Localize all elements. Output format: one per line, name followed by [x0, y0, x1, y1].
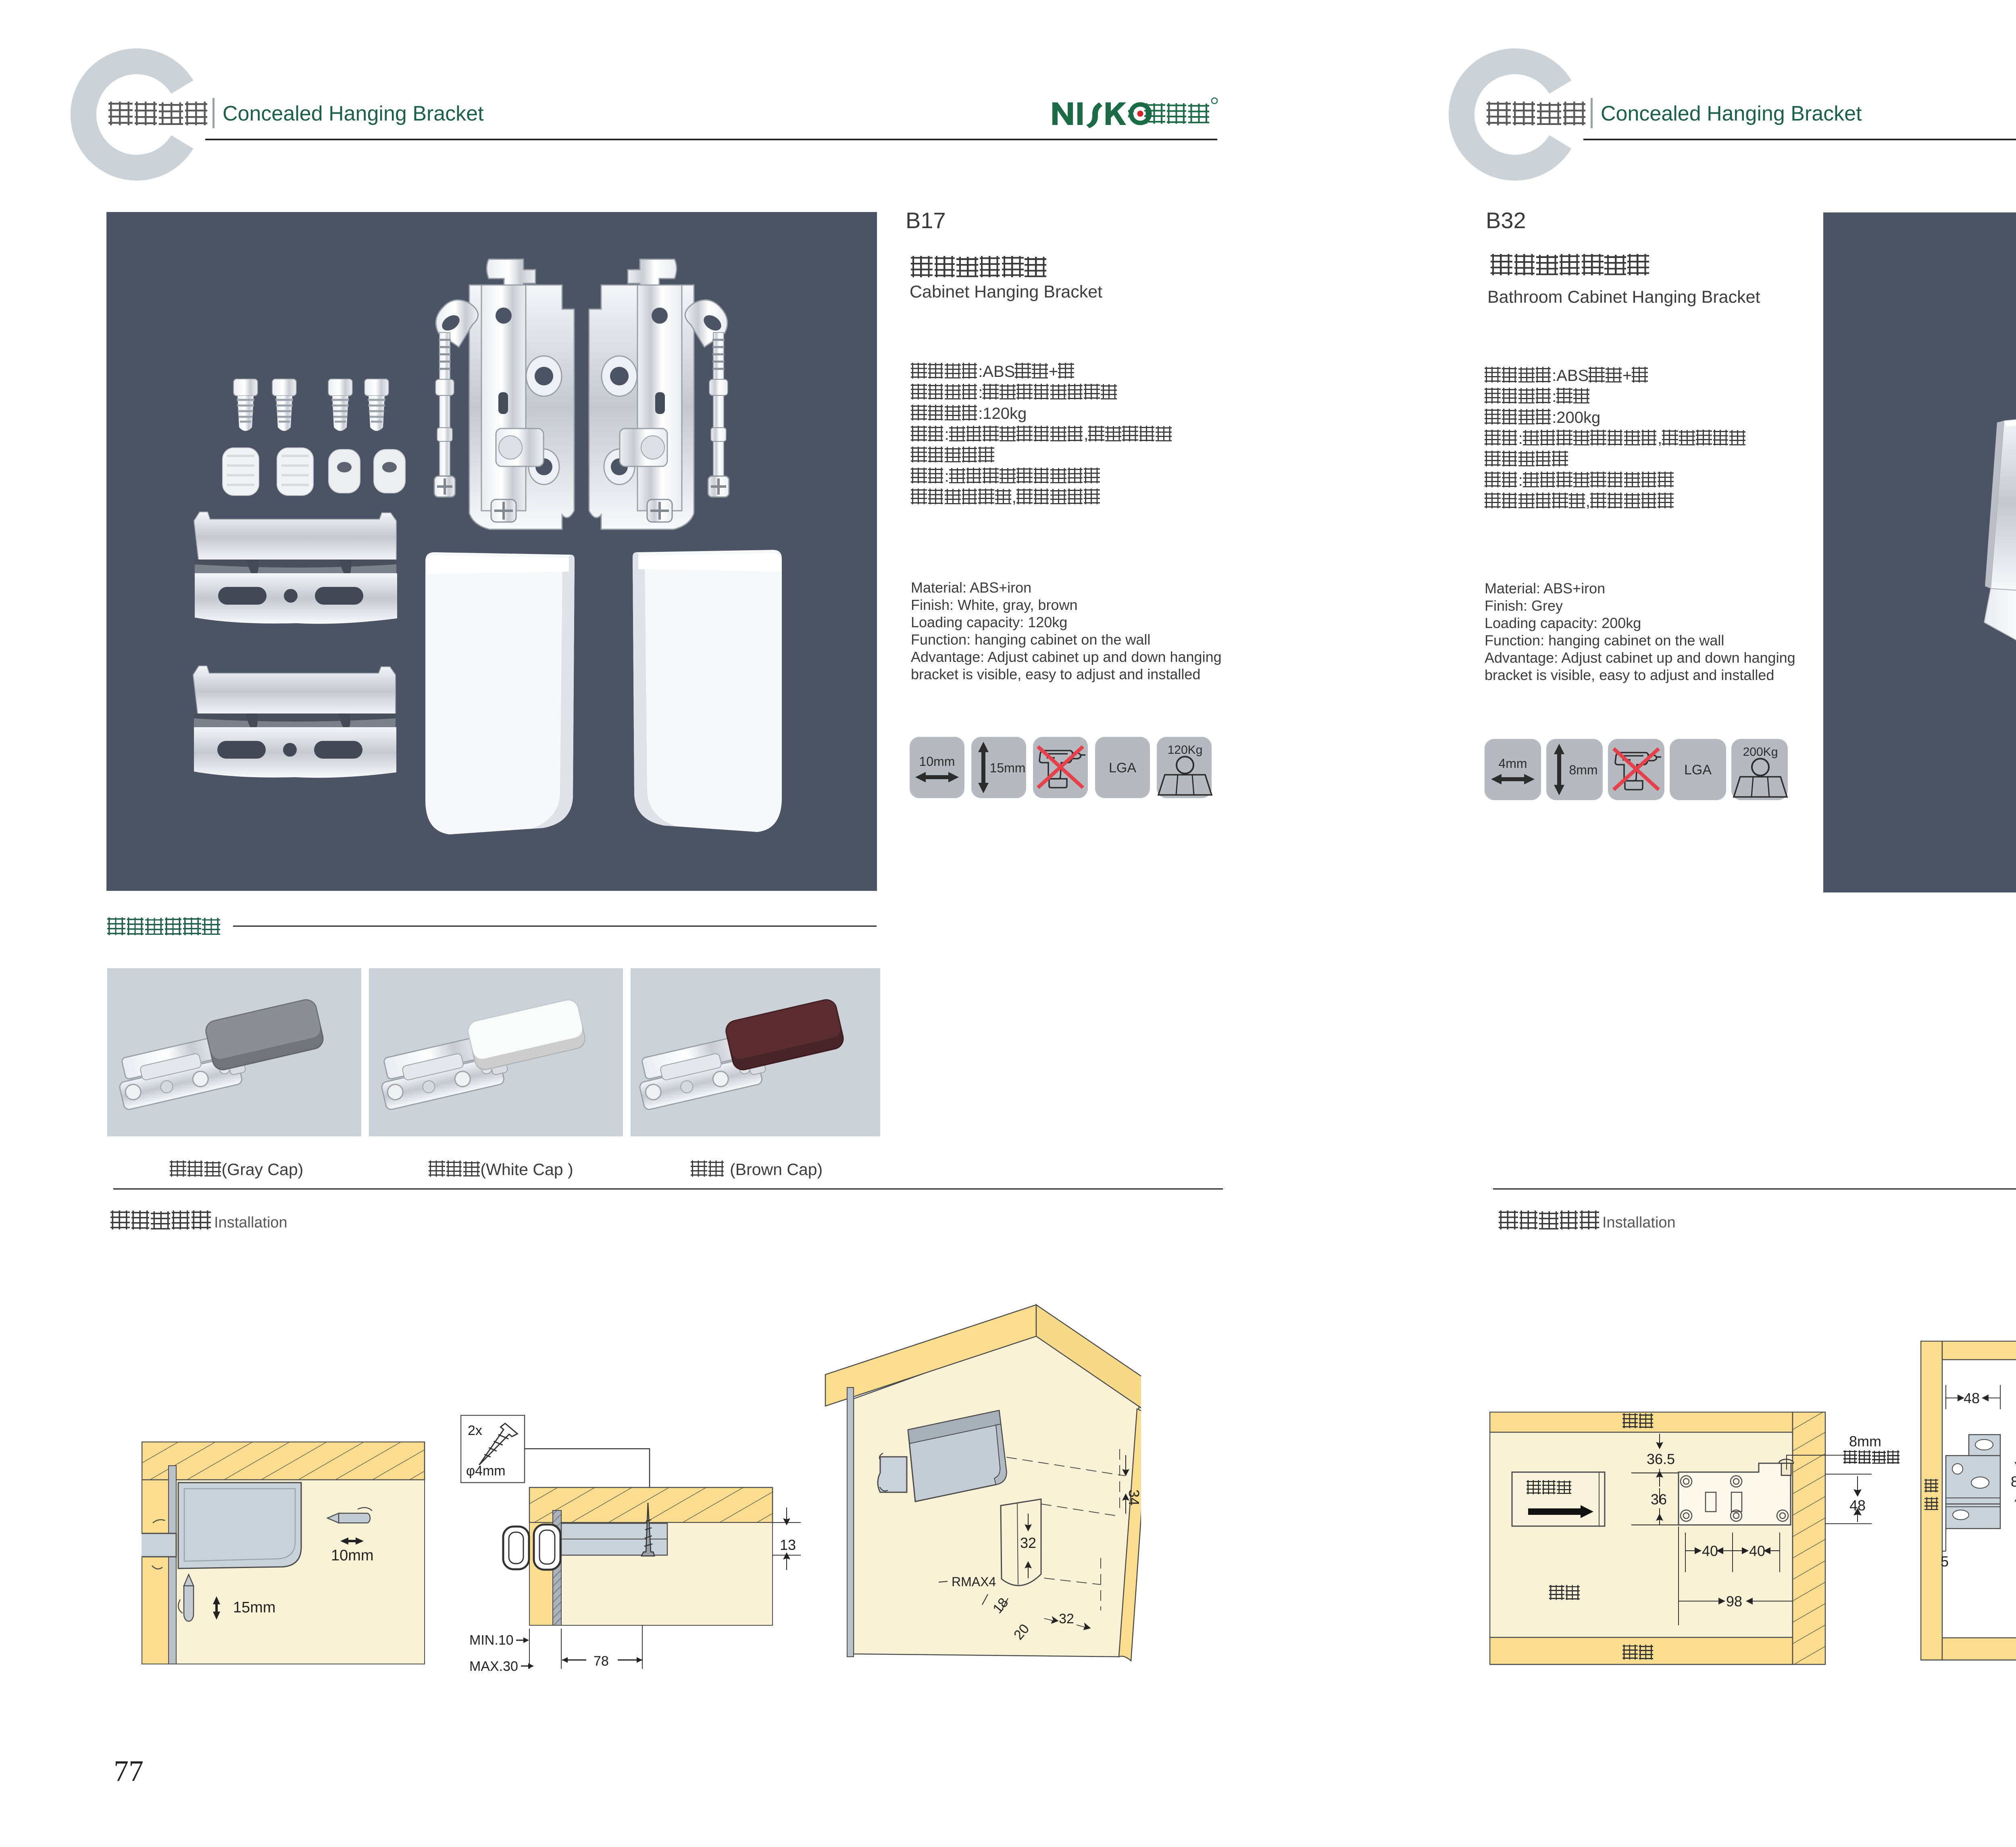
svg-text:RMAX4: RMAX4 — [952, 1575, 996, 1589]
svg-text:MIN.10: MIN.10 — [469, 1633, 514, 1648]
svg-text:120Kg: 120Kg — [1168, 743, 1203, 757]
svg-text:4mm: 4mm — [1498, 756, 1527, 771]
svg-text:98: 98 — [1726, 1593, 1742, 1610]
svg-text:8mm: 8mm — [1569, 763, 1597, 777]
svg-text:36.5: 36.5 — [1647, 1451, 1675, 1467]
svg-text:40: 40 — [1749, 1543, 1765, 1559]
svg-text:8mm: 8mm — [1849, 1433, 1881, 1450]
svg-text:40: 40 — [1702, 1543, 1718, 1559]
svg-text:15mm: 15mm — [233, 1599, 276, 1616]
svg-text:10mm: 10mm — [331, 1547, 374, 1564]
svg-text:15mm: 15mm — [990, 761, 1026, 775]
svg-text:34: 34 — [1126, 1489, 1141, 1506]
svg-text:48: 48 — [1849, 1497, 1866, 1514]
svg-text:78: 78 — [594, 1654, 609, 1669]
svg-text:MAX.30: MAX.30 — [469, 1659, 518, 1674]
svg-text:36: 36 — [1651, 1491, 1667, 1508]
svg-text:48: 48 — [1964, 1390, 1980, 1406]
svg-text:φ4mm: φ4mm — [466, 1463, 506, 1479]
svg-text:32: 32 — [1020, 1535, 1036, 1551]
svg-text:LGA: LGA — [1109, 760, 1136, 776]
svg-text:5: 5 — [1941, 1553, 1949, 1570]
svg-text:32: 32 — [1059, 1611, 1074, 1627]
svg-text:10mm: 10mm — [919, 754, 955, 769]
svg-text:2x: 2x — [468, 1423, 482, 1438]
svg-text:13: 13 — [780, 1537, 796, 1553]
svg-text:LGA: LGA — [1684, 762, 1712, 778]
svg-text:200Kg: 200Kg — [1743, 745, 1778, 759]
svg-text:80: 80 — [2011, 1473, 2016, 1490]
